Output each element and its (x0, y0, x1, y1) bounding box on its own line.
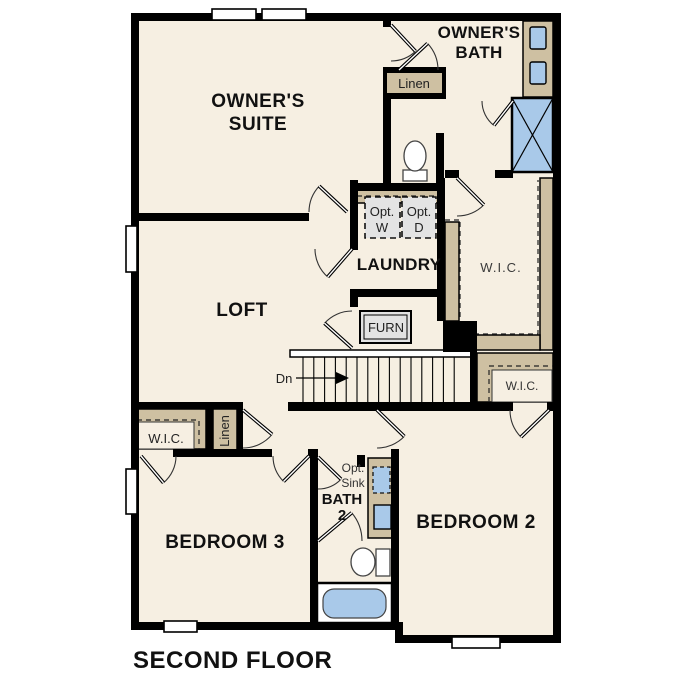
svg-text:SUITE: SUITE (229, 114, 287, 135)
bath2-opt-sink-label: Opt. (342, 461, 365, 475)
floor-plan-drawing: OWNER'S SUITE OWNER'S BATH Linen Opt. W … (0, 0, 687, 687)
bedroom3-label: BEDROOM 3 (165, 532, 285, 553)
stairs-down-label: Dn (276, 371, 293, 386)
vanity-sink-2 (530, 62, 546, 84)
opt-dryer-label: Opt. (407, 204, 432, 219)
plan-title: SECOND FLOOR (133, 647, 332, 674)
bath2-optional-sink (373, 467, 390, 493)
window (212, 9, 256, 20)
svg-text:W: W (376, 220, 389, 235)
window (452, 637, 500, 648)
wic-bedroom3-label: W.I.C. (148, 431, 183, 446)
loft-label: LOFT (216, 300, 268, 321)
svg-text:2: 2 (338, 507, 346, 524)
linen-lower-label: Linen (217, 415, 232, 447)
owners-suite-label: OWNER'S (211, 91, 305, 112)
laundry-label: LAUNDRY (357, 255, 442, 274)
wic-owner-shelf-right (540, 178, 553, 350)
vanity-sink-1 (530, 27, 546, 49)
owners-toilet (403, 141, 427, 181)
bath2-label: BATH (322, 491, 363, 508)
wic-owner-label: W.I.C. (480, 260, 521, 275)
wic-bedroom2-label: W.I.C. (506, 379, 539, 393)
linen-upper-label: Linen (398, 76, 430, 91)
svg-text:D: D (414, 220, 423, 235)
bedroom2-label: BEDROOM 2 (416, 512, 536, 533)
window (262, 9, 306, 20)
bath2-toilet (351, 548, 390, 576)
svg-text:BATH: BATH (455, 43, 502, 62)
owners-bath-label: OWNER'S (438, 23, 521, 42)
wic-owner-shelf-left (445, 222, 459, 321)
furnace-label: FURN (368, 320, 404, 335)
svg-text:Sink: Sink (341, 476, 365, 490)
bathtub (317, 583, 392, 623)
shower (512, 98, 553, 172)
window (164, 621, 197, 632)
bath2-sink (374, 505, 391, 529)
window (126, 226, 137, 272)
window (126, 469, 137, 514)
opt-washer-label: Opt. (370, 204, 395, 219)
floor-plan-page: OWNER'S SUITE OWNER'S BATH Linen Opt. W … (0, 0, 687, 687)
